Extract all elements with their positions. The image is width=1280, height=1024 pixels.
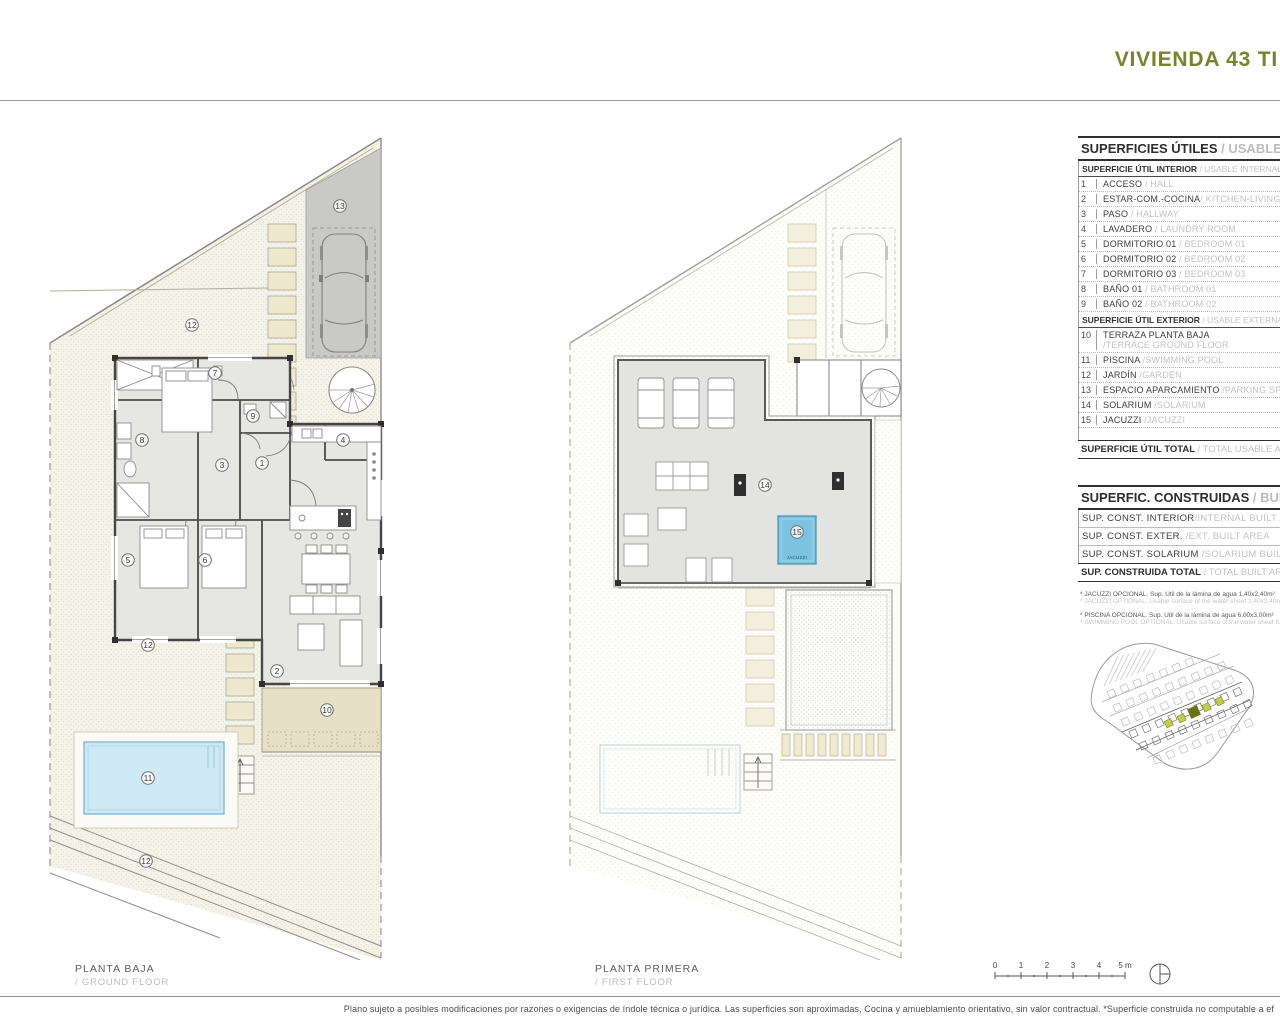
scale-minor-dot: [1085, 975, 1087, 977]
room-marker-number: 5: [126, 555, 131, 565]
legend-row: 5 DORMITORIO 01 / BEDROOM 01: [1079, 237, 1280, 252]
legend-panel: SUPERFICIES ÚTILES / USABLE AREA SUPERFI…: [1078, 136, 1280, 633]
room-marker-number: 15: [792, 527, 802, 537]
room-marker-number: 12: [141, 856, 151, 866]
scale-tick-label: 3: [1071, 961, 1076, 970]
top-rule: [0, 100, 1280, 101]
room-marker-number: 2: [275, 666, 280, 676]
legend-row: 12 JARDÍN /GARDEN: [1079, 368, 1280, 383]
disclaimer-text: Plano sujeto a posibles modificaciones p…: [344, 1004, 1274, 1014]
ground-floor-caption: PLANTA BAJA / GROUND FLOOR: [75, 963, 169, 988]
room-marker-number: 4: [341, 435, 346, 445]
footnote: * PISCINA OPCIONAL. Sup. Útil de la lámi…: [1080, 612, 1280, 626]
usable-area-title: SUPERFICIES ÚTILES / USABLE AREA: [1078, 136, 1280, 161]
room-marker-number: 10: [322, 705, 332, 715]
scale-tick-label: 1: [1019, 961, 1024, 970]
usable-interior-rows: 1 ACCESO / HALL 2 ESTAR-COM.-COCINA/ KIT…: [1078, 177, 1280, 312]
room-marker-number: 12: [187, 320, 197, 330]
house-plot: [1244, 718, 1253, 727]
room-marker-number: 6: [203, 555, 208, 565]
room-marker-number: 9: [251, 411, 256, 421]
sun-loungers: [638, 378, 734, 428]
footnotes: * JACUZZI OPCIONAL. Sup. Útil de la lámi…: [1078, 591, 1280, 626]
first-floor-caption: PLANTA PRIMERA / FIRST FLOOR: [595, 963, 699, 988]
scale-minor-dot: [1033, 975, 1035, 977]
room-marker-number: 1: [260, 458, 265, 468]
spiral-stair-icon: [862, 369, 900, 407]
legend-row: SUP. CONST. INTERIOR/INTERNAL BUILT AREA: [1078, 510, 1280, 528]
jacuzzi: JACUZZI: [778, 516, 816, 564]
scale-tick-label: 2: [1045, 961, 1050, 970]
legend-row: 14 SOLARIUM /SOLARIUM: [1079, 398, 1280, 413]
usable-interior-header: SUPERFICIE ÚTIL INTERIOR / USABLE INTERN…: [1078, 161, 1280, 177]
page-title: VIVIENDA 43 TI: [1115, 48, 1278, 72]
scale-minor-dot: [1111, 975, 1113, 977]
scale-minor-dot: [1059, 975, 1061, 977]
room-marker-number: 11: [144, 773, 153, 783]
legend-row: 7 DORMITORIO 03 / BEDROOM 03: [1079, 267, 1280, 282]
garden-steps: [744, 754, 772, 790]
legend-row: SUP. CONST. SOLARIUM /SOLARIUM BUILT ARE…: [1078, 546, 1280, 564]
built-total-row: SUP. CONSTRUIDA TOTAL / TOTAL BUILT AREA: [1078, 563, 1280, 582]
legend-row: 9 BAÑO 02 / BATHROOM 02: [1079, 297, 1280, 312]
spiral-stair-icon: [329, 367, 375, 413]
scale-tick-label: 4: [1097, 961, 1102, 970]
bottom-rule: [0, 996, 1280, 997]
legend-row: 2 ESTAR-COM.-COCINA/ KITCHEN-LIVING: [1079, 192, 1280, 207]
legend-row: 15 JACUZZI /JACUZZI: [1079, 413, 1280, 428]
roof-over-living: [786, 590, 892, 730]
legend-row: SUP. CONST. EXTER. /EXT. BUILT AREA: [1078, 528, 1280, 546]
room-marker-number: 3: [220, 460, 225, 470]
built-rows: SUP. CONST. INTERIOR/INTERNAL BUILT AREA…: [1078, 510, 1280, 564]
stair-landing: [794, 357, 901, 416]
first-floor-plan: JACUZZI: [560, 128, 1000, 960]
room-marker-number: 12: [143, 640, 153, 650]
room-marker-number: 8: [140, 435, 145, 445]
ground-floor-plan: 131279841356122101112: [40, 128, 480, 960]
built-area-title: SUPERFIC. CONSTRUIDAS / BUILT AREA: [1078, 485, 1280, 510]
legend-row: 8 BAÑO 01 / BATHROOM 01: [1079, 282, 1280, 297]
scale-tick-label: 5 m: [1118, 961, 1132, 970]
legend-row: 13 ESPACIO APARCAMIENTO /PARKING SPACE: [1079, 383, 1280, 398]
legend-row: 11 PISCINA /SWIMMING POOL: [1079, 353, 1280, 368]
legend-row: 6 DORMITORIO 02 / BEDROOM 02: [1079, 252, 1280, 267]
terrace: [262, 688, 381, 756]
north-indicator-icon: [1150, 964, 1170, 984]
drawing-sheet: VIVIENDA 43 TI: [0, 0, 1280, 1024]
jacuzzi-label: JACUZZI: [787, 555, 808, 560]
swimming-pool: [74, 732, 238, 828]
room-marker-number: 14: [760, 480, 770, 490]
legend-row: 3 PASO / HALLWAY: [1079, 207, 1280, 222]
usable-exterior-header: SUPERFICIE ÚTIL EXTERIOR / USABLE EXTERN…: [1078, 312, 1280, 328]
room-marker-number: 13: [335, 201, 345, 211]
scale-minor-dot: [1007, 975, 1009, 977]
legend-row: 1 ACCESO / HALL: [1079, 177, 1280, 192]
footnote: * JACUZZI OPCIONAL. Sup. Útil de la lámi…: [1080, 591, 1280, 605]
scale-tick-label: 0: [993, 961, 998, 970]
usable-exterior-rows: 10 TERRAZA PLANTA BAJA/TERRACE GROUND FL…: [1078, 328, 1280, 428]
legend-row: 10 TERRAZA PLANTA BAJA/TERRACE GROUND FL…: [1079, 328, 1280, 353]
usable-total-row: SUPERFICIE ÚTIL TOTAL / TOTAL USABLE ARE…: [1078, 440, 1280, 459]
site-key-map: [1072, 630, 1272, 788]
built-area-table: SUPERFIC. CONSTRUIDAS / BUILT AREA SUP. …: [1078, 485, 1280, 582]
scale-bar: 012345 m: [985, 958, 1200, 988]
legend-row: 4 LAVADERO / LAUNDRY ROOM: [1079, 222, 1280, 237]
pergola-slats: [780, 730, 896, 760]
room-marker-number: 7: [213, 368, 218, 378]
